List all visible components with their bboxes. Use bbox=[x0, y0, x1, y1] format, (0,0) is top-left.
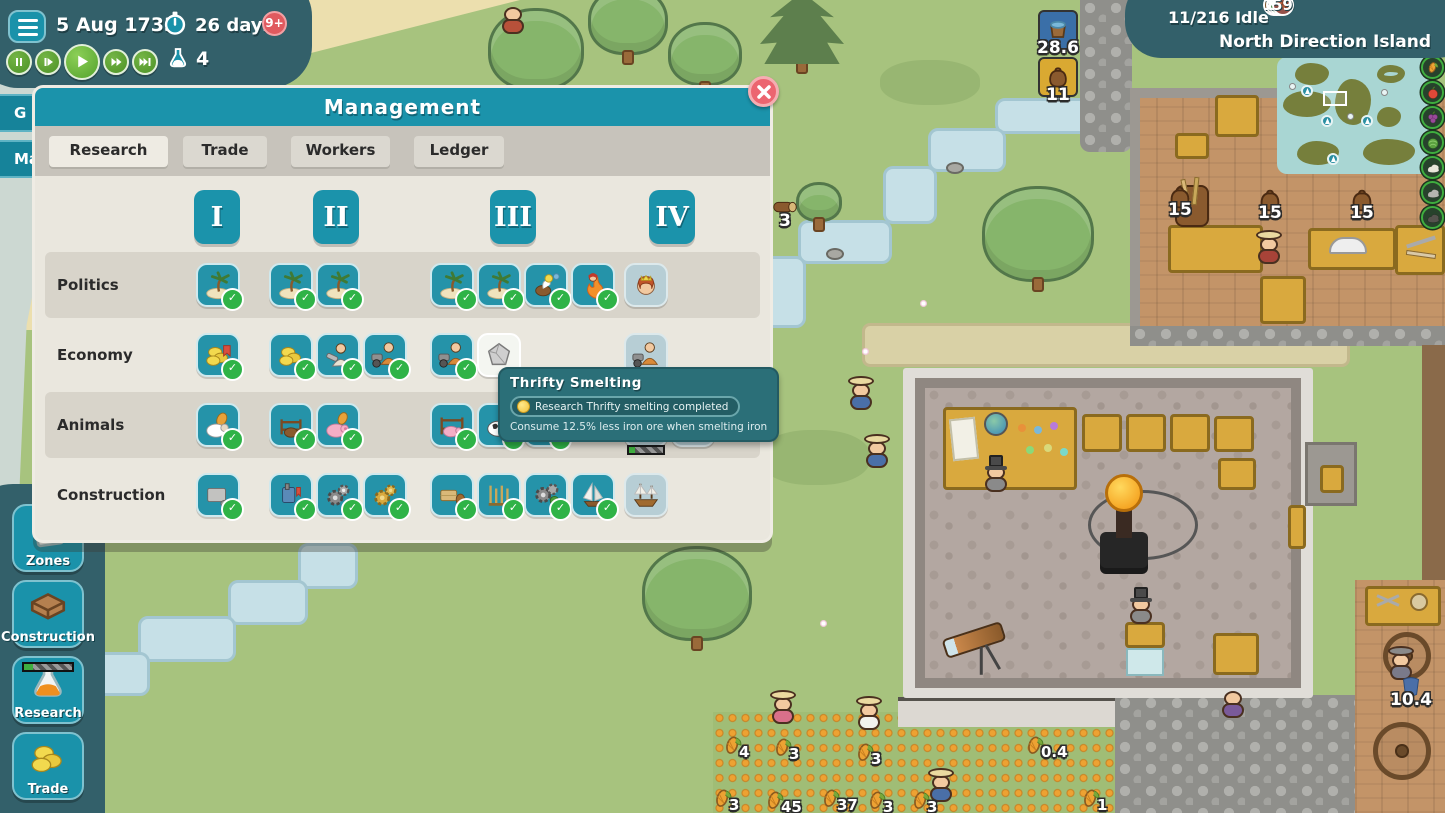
tier-cell bbox=[196, 473, 240, 517]
tooltip-title: Thrifty Smelting bbox=[510, 375, 767, 391]
workbench bbox=[1168, 225, 1263, 273]
game-date: 5 Aug 1733 bbox=[56, 14, 177, 36]
crop-marker: 4 bbox=[720, 733, 749, 759]
tab-workers[interactable]: Workers bbox=[291, 136, 390, 167]
panel-title: Management bbox=[35, 88, 770, 126]
game-screen: 28.611315151510.4 4330.434537331 5 Aug 1… bbox=[0, 0, 1445, 813]
crop-marker: 37 bbox=[818, 786, 858, 812]
tier-cell bbox=[269, 263, 360, 307]
minimap-ship-icon bbox=[1301, 85, 1313, 97]
door bbox=[1260, 276, 1306, 324]
research-node-goose-coin[interactable] bbox=[524, 263, 568, 307]
gears-green-icon bbox=[531, 480, 561, 510]
tier-cell bbox=[624, 263, 668, 307]
trade-coins-icon bbox=[27, 736, 69, 778]
flame-figure-icon bbox=[578, 270, 608, 300]
villager bbox=[1128, 590, 1154, 624]
tooltip-status: Research Thrifty smelting completed bbox=[535, 401, 728, 413]
minimap-island bbox=[1363, 139, 1415, 165]
person-cart-icon bbox=[631, 340, 661, 370]
marker-value: 28.6 bbox=[1037, 38, 1079, 58]
machine-icon bbox=[276, 480, 306, 510]
cabbage-icon bbox=[1425, 135, 1441, 151]
orrery-sun bbox=[1105, 474, 1143, 512]
research-node-flame-figure[interactable] bbox=[571, 263, 615, 307]
tab-trade[interactable]: Trade bbox=[183, 136, 267, 167]
marker-value: 15 bbox=[1168, 200, 1192, 220]
tier-cell bbox=[430, 263, 615, 307]
top-right-hud: 11/216 Idle 148809559 North Direction Is… bbox=[1125, 0, 1445, 58]
tier-header-I: I bbox=[194, 190, 240, 244]
world-marker-sack: 11 bbox=[1038, 57, 1078, 105]
research-node-gears[interactable] bbox=[316, 473, 360, 517]
research-node-queen[interactable] bbox=[624, 263, 668, 307]
research-node-sheep[interactable] bbox=[196, 403, 240, 447]
sidebar-button-label: Trade bbox=[28, 782, 69, 797]
rock bbox=[826, 248, 844, 260]
ship-icon bbox=[631, 480, 661, 510]
tier-cell bbox=[624, 473, 668, 517]
side-table bbox=[1213, 633, 1259, 675]
crop-marker: 3 bbox=[710, 786, 739, 812]
villager bbox=[500, 0, 526, 34]
speed-fastest-button[interactable] bbox=[132, 49, 158, 75]
stone-pile-icon bbox=[1425, 185, 1441, 201]
sidebar-button-label: Research bbox=[14, 706, 82, 721]
minimap-island bbox=[1377, 107, 1401, 127]
tab-ledger[interactable]: Ledger bbox=[414, 136, 504, 167]
speed-pause-button[interactable] bbox=[6, 49, 32, 75]
island-icon bbox=[203, 270, 233, 300]
marker-value: 11 bbox=[1046, 85, 1070, 105]
island-name: North Direction Island bbox=[1195, 32, 1445, 52]
villager bbox=[1220, 684, 1246, 718]
research-tooltip: Thrifty Smelting Research Thrifty smelti… bbox=[498, 367, 779, 442]
sidebar-button-construction[interactable]: Construction bbox=[12, 580, 84, 648]
minimap-pin-icon bbox=[1381, 89, 1388, 96]
research-node-animal-pen[interactable] bbox=[269, 403, 313, 447]
crop-marker: 3 bbox=[908, 788, 937, 813]
animal-pen-icon bbox=[276, 410, 306, 440]
idle-count: 11/216 Idle bbox=[1168, 8, 1269, 27]
skeleton-case bbox=[1126, 648, 1164, 676]
pig-icon bbox=[323, 410, 353, 440]
research-node-person-cart[interactable] bbox=[363, 333, 407, 377]
speed-fast-button[interactable] bbox=[103, 49, 129, 75]
rail-coal-icon[interactable] bbox=[1421, 206, 1444, 229]
research-node-pig[interactable] bbox=[316, 403, 360, 447]
apple-icon bbox=[1425, 85, 1441, 101]
scaffold-icon bbox=[484, 480, 514, 510]
tier-cell bbox=[196, 333, 240, 377]
stopwatch-icon bbox=[162, 10, 188, 36]
villager bbox=[1256, 230, 1282, 264]
crop-yield: 0.4 bbox=[1041, 743, 1068, 761]
research-node-coins[interactable] bbox=[269, 333, 313, 377]
alcove bbox=[1305, 442, 1357, 506]
research-node-scaffold[interactable] bbox=[477, 473, 521, 517]
door bbox=[1215, 95, 1259, 137]
crop-marker: 3 bbox=[852, 740, 881, 766]
crate bbox=[1126, 414, 1166, 452]
tier-header-III: III bbox=[490, 190, 536, 244]
south-wall bbox=[898, 697, 1115, 727]
crop-marker: 1 bbox=[1078, 786, 1107, 812]
research-node-coins-tagged[interactable] bbox=[196, 333, 240, 377]
coins-icon bbox=[276, 340, 306, 370]
map bbox=[949, 417, 979, 461]
resource-value: 59 bbox=[1272, 0, 1293, 14]
research-node-island[interactable] bbox=[477, 263, 521, 307]
tooltip-status-pill: Research Thrifty smelting completed bbox=[510, 396, 740, 417]
tab-bar: ResearchTradeWorkersLedger bbox=[35, 126, 770, 176]
crop-marker: 0.4 bbox=[1022, 733, 1068, 759]
crate bbox=[1175, 133, 1209, 159]
sidebar-button-label: Construction bbox=[1, 630, 95, 645]
goose-coin-icon bbox=[531, 270, 561, 300]
research-node-gears-gold[interactable] bbox=[363, 473, 407, 517]
lab-table bbox=[943, 407, 1077, 490]
marker-value: 10.4 bbox=[1390, 690, 1432, 710]
marker-value: 15 bbox=[1258, 203, 1282, 223]
minimap-pin-icon bbox=[1289, 83, 1296, 90]
display-desk bbox=[1125, 622, 1165, 648]
rail-grapes-icon[interactable] bbox=[1421, 106, 1444, 129]
pig-pen-icon bbox=[437, 410, 467, 440]
wall-icon bbox=[203, 480, 233, 510]
river bbox=[228, 580, 308, 625]
tool-table bbox=[1395, 225, 1445, 275]
research-node-wall[interactable] bbox=[196, 473, 240, 517]
research-node-island[interactable] bbox=[430, 263, 474, 307]
research-node-sailboat[interactable] bbox=[571, 473, 615, 517]
river bbox=[928, 128, 1006, 172]
tier-cell bbox=[430, 473, 615, 517]
tier-cell bbox=[269, 473, 407, 517]
river bbox=[138, 616, 236, 662]
person-cart-icon bbox=[370, 340, 400, 370]
research-node-gears-green[interactable] bbox=[524, 473, 568, 517]
planks-icon bbox=[437, 480, 467, 510]
minimap-ship-icon bbox=[1361, 115, 1373, 127]
research-flask-icon bbox=[166, 44, 190, 72]
research-node-island[interactable] bbox=[269, 263, 313, 307]
top-left-hud: 5 Aug 1733 26 days 9+ 4 bbox=[0, 0, 312, 88]
speed-play-button[interactable] bbox=[64, 44, 100, 80]
minimap-ship-icon bbox=[1327, 153, 1339, 165]
coins-tagged-icon bbox=[203, 340, 233, 370]
research-row-label: Animals bbox=[57, 416, 124, 434]
flour-icon bbox=[1425, 160, 1441, 176]
globe bbox=[984, 412, 1008, 436]
minimap-ship-icon bbox=[1321, 115, 1333, 127]
crop-yield: 3 bbox=[789, 745, 799, 763]
research-row-label: Politics bbox=[57, 276, 119, 294]
tier-header-IV: IV bbox=[649, 190, 695, 244]
grass-patch bbox=[880, 60, 980, 105]
gears-gold-icon bbox=[370, 480, 400, 510]
tree bbox=[796, 182, 842, 232]
villager bbox=[856, 696, 882, 730]
iron-ore-icon bbox=[484, 340, 514, 370]
sheep-icon bbox=[203, 410, 233, 440]
world-marker-log: 3 bbox=[770, 193, 800, 231]
villager bbox=[770, 690, 796, 724]
menu-icon[interactable] bbox=[8, 10, 46, 43]
east-door bbox=[1288, 505, 1306, 549]
close-icon[interactable] bbox=[748, 76, 779, 107]
villager bbox=[983, 458, 1009, 492]
crop-yield: 3 bbox=[927, 798, 937, 813]
building-edge bbox=[1422, 345, 1445, 580]
river bbox=[298, 543, 358, 589]
crop-yield: 1 bbox=[1097, 796, 1107, 813]
world-marker-sack: 15 bbox=[1165, 182, 1195, 220]
crate bbox=[1082, 414, 1122, 452]
crate bbox=[1214, 416, 1254, 452]
person-saw-icon bbox=[323, 340, 353, 370]
coal-icon bbox=[1425, 210, 1441, 226]
rail-apple-icon[interactable] bbox=[1421, 81, 1444, 104]
island-icon bbox=[484, 270, 514, 300]
craft-table bbox=[1365, 586, 1441, 626]
person-cart-icon bbox=[437, 340, 467, 370]
rail-flour-icon[interactable] bbox=[1421, 156, 1444, 179]
crop-yield: 37 bbox=[837, 796, 858, 813]
research-building bbox=[903, 368, 1313, 698]
rail-cabbage-icon[interactable] bbox=[1421, 131, 1444, 154]
world-marker-sack: 15 bbox=[1347, 185, 1377, 223]
research-queue-count: 4 bbox=[196, 48, 209, 70]
crop-marker: 3 bbox=[864, 788, 893, 813]
rock bbox=[946, 162, 964, 174]
table bbox=[1308, 228, 1396, 270]
tree bbox=[668, 22, 742, 96]
river bbox=[883, 166, 937, 224]
management-panel: Management ResearchTradeWorkersLedger II… bbox=[35, 88, 770, 540]
tree bbox=[642, 546, 752, 651]
crop-marker: 45 bbox=[762, 788, 802, 813]
tree bbox=[982, 186, 1094, 292]
minimap[interactable] bbox=[1277, 57, 1433, 174]
tab-research[interactable]: Research bbox=[49, 136, 168, 167]
world-marker-sack: 15 bbox=[1255, 185, 1285, 223]
tier-cell bbox=[196, 403, 240, 447]
research-node-planks[interactable] bbox=[430, 473, 474, 517]
crate bbox=[1170, 414, 1210, 452]
node-progress-bar bbox=[627, 445, 665, 455]
rail-stone-pile-icon[interactable] bbox=[1421, 181, 1444, 204]
research-progress-bar bbox=[22, 662, 74, 672]
crop-yield: 3 bbox=[883, 798, 893, 813]
corn-icon bbox=[1425, 60, 1441, 76]
sidebar-button-research[interactable]: Research bbox=[12, 656, 84, 724]
research-node-machine[interactable] bbox=[269, 473, 313, 517]
research-node-person-saw[interactable] bbox=[316, 333, 360, 377]
crop-yield: 4 bbox=[739, 743, 749, 761]
villager bbox=[864, 434, 890, 468]
crate bbox=[1218, 458, 1256, 490]
tier-cell bbox=[196, 263, 240, 307]
crop-marker: 3 bbox=[770, 735, 799, 761]
speed-controls bbox=[6, 42, 166, 82]
island-icon bbox=[323, 270, 353, 300]
marker-value: 15 bbox=[1350, 203, 1374, 223]
tree bbox=[588, 0, 668, 65]
research-node-island[interactable] bbox=[196, 263, 240, 307]
tier-cell bbox=[269, 333, 407, 377]
crop-yield: 45 bbox=[781, 798, 802, 813]
research-node-pig-pen[interactable] bbox=[430, 403, 474, 447]
pine-tree bbox=[760, 0, 844, 74]
minimap-viewport bbox=[1323, 91, 1347, 106]
research-row-label: Economy bbox=[57, 346, 133, 364]
sailboat-icon bbox=[578, 480, 608, 510]
research-node-island[interactable] bbox=[316, 263, 360, 307]
villager bbox=[848, 376, 874, 410]
crop-yield: 3 bbox=[729, 796, 739, 813]
crop-yield: 3 bbox=[871, 750, 881, 768]
research-grid: IIIIIIIVPoliticsEconomyAnimalsConstructi… bbox=[35, 176, 770, 540]
sidebar-button-trade[interactable]: Trade bbox=[12, 732, 84, 800]
minimap-pin-icon bbox=[1347, 113, 1354, 120]
notification-badge[interactable]: 9+ bbox=[262, 11, 287, 36]
tooltip-description: Consume 12.5% less iron ore when smeltin… bbox=[510, 421, 767, 433]
world-marker-water-bucket: 28.6 bbox=[1037, 10, 1079, 58]
foundation-icon bbox=[27, 584, 69, 626]
cloche bbox=[1329, 237, 1367, 254]
grapes-icon bbox=[1425, 110, 1441, 126]
sidebar-button-label: Zones bbox=[26, 554, 70, 569]
minimap-island bbox=[1377, 65, 1405, 83]
spinning-wheel bbox=[1373, 722, 1431, 780]
island-icon bbox=[276, 270, 306, 300]
gears-icon bbox=[323, 480, 353, 510]
rail-corn-icon[interactable] bbox=[1421, 56, 1444, 79]
resource-rail bbox=[1421, 56, 1444, 229]
tier-header-II: II bbox=[313, 190, 359, 244]
research-node-ship[interactable] bbox=[624, 473, 668, 517]
marker-value: 3 bbox=[779, 211, 791, 231]
island-icon bbox=[437, 270, 467, 300]
research-node-person-cart[interactable] bbox=[430, 333, 474, 377]
queen-icon bbox=[631, 270, 661, 300]
world-marker-cloth: 10.4 bbox=[1390, 672, 1432, 710]
tier-cell bbox=[269, 403, 360, 447]
bulb-icon bbox=[517, 400, 530, 413]
speed-step-button[interactable] bbox=[35, 49, 61, 75]
minimap-island bbox=[1295, 63, 1329, 85]
research-row-label: Construction bbox=[57, 486, 165, 504]
